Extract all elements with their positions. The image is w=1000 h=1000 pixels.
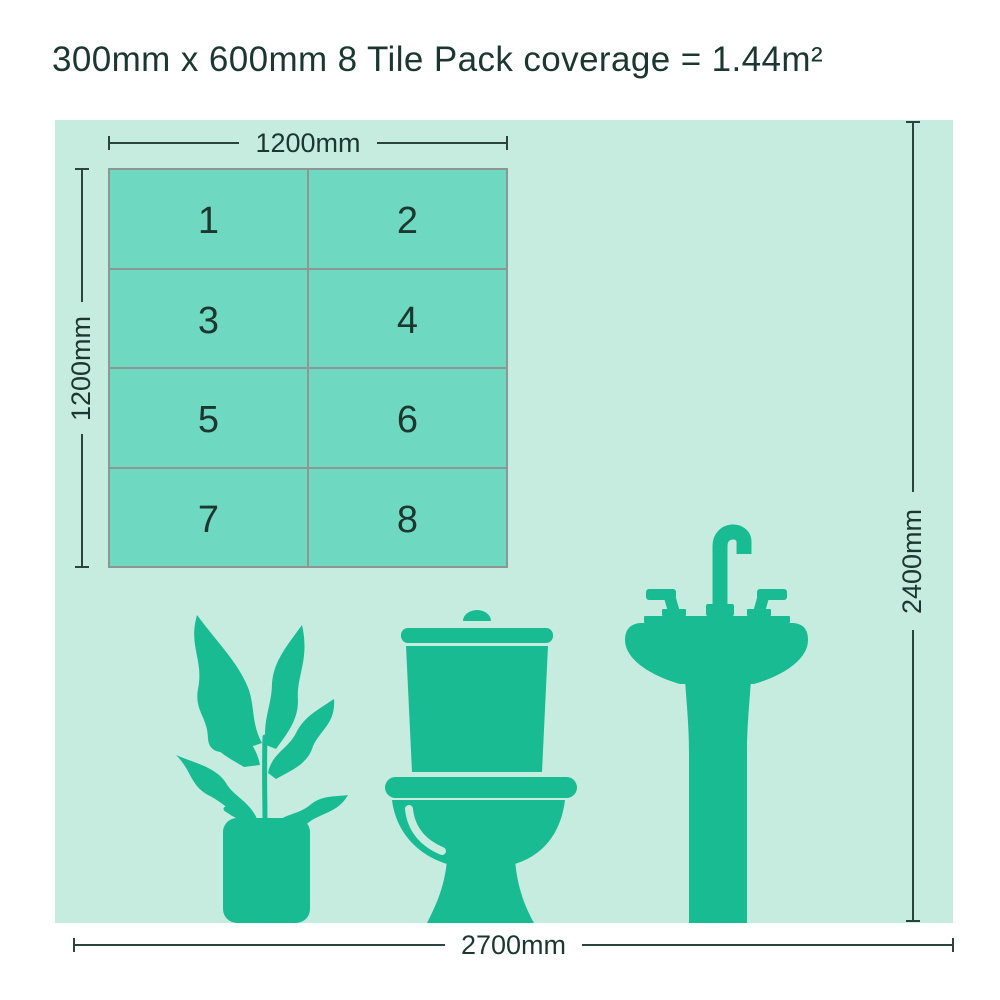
sink-tap-left-foot (662, 609, 686, 616)
tile-number: 5 (198, 399, 219, 442)
dimension-line (377, 142, 506, 144)
dimension-label: 1200mm (67, 315, 98, 420)
dimension-tick (506, 136, 508, 150)
dimension-tick (906, 920, 920, 922)
tile-coverage-diagram: 300mm x 600mm 8 Tile Pack coverage = 1.4… (0, 0, 1000, 1000)
dimension-line (912, 630, 914, 920)
tile-2: 2 (309, 170, 506, 268)
dimension-room-width: 2700mm (73, 938, 954, 952)
tile-3: 3 (110, 270, 307, 368)
tile-1: 1 (110, 170, 307, 268)
toilet-cistern (406, 646, 548, 772)
tile-number: 3 (198, 300, 219, 343)
dimension-label: 1200mm (239, 128, 376, 159)
dimension-tick (952, 938, 954, 952)
dimension-label: 2400mm (898, 509, 929, 614)
tile-grid: 1 2 3 4 5 6 7 8 (108, 168, 508, 568)
tile-8: 8 (309, 469, 506, 567)
toilet-pedestal (427, 859, 534, 923)
tile-number: 7 (198, 499, 219, 542)
sink-deck (644, 616, 790, 623)
toilet-lid-knob (463, 610, 491, 621)
dimension-line (110, 142, 239, 144)
dimension-line (75, 944, 445, 946)
tile-number: 2 (397, 200, 418, 243)
plant-pot (223, 818, 310, 923)
tile-6: 6 (309, 369, 506, 467)
sink-faucet (720, 532, 744, 612)
plant-icon (170, 613, 350, 923)
sink-basin (625, 623, 808, 684)
sink-tap-right-foot (747, 609, 771, 616)
dimension-line (81, 170, 83, 302)
sink-faucet-base (706, 604, 734, 616)
tile-number: 1 (198, 200, 219, 243)
dimension-label-wrap: 1200mm (29, 302, 134, 434)
toilet-lid (401, 628, 553, 643)
tile-5: 5 (110, 369, 307, 467)
dimension-grid-height: 1200mm (75, 168, 89, 568)
dimension-grid-width: 1200mm (108, 136, 508, 150)
sink-icon (618, 518, 818, 923)
dimension-line (582, 944, 952, 946)
dimension-tick (75, 566, 89, 568)
tile-number: 6 (397, 399, 418, 442)
tile-number: 8 (397, 499, 418, 542)
toilet-icon (385, 603, 585, 923)
dimension-label: 2700mm (445, 930, 582, 961)
tile-number: 4 (397, 300, 418, 343)
page-title: 300mm x 600mm 8 Tile Pack coverage = 1.4… (52, 40, 823, 80)
toilet-seat (385, 777, 577, 798)
tile-4: 4 (309, 270, 506, 368)
tile-7: 7 (110, 469, 307, 567)
dimension-line (81, 434, 83, 566)
sink-pedestal (685, 680, 751, 923)
dimension-room-height: 2400mm (906, 121, 920, 922)
dimension-line (912, 123, 914, 492)
dimension-label-wrap: 2400mm (860, 492, 965, 630)
